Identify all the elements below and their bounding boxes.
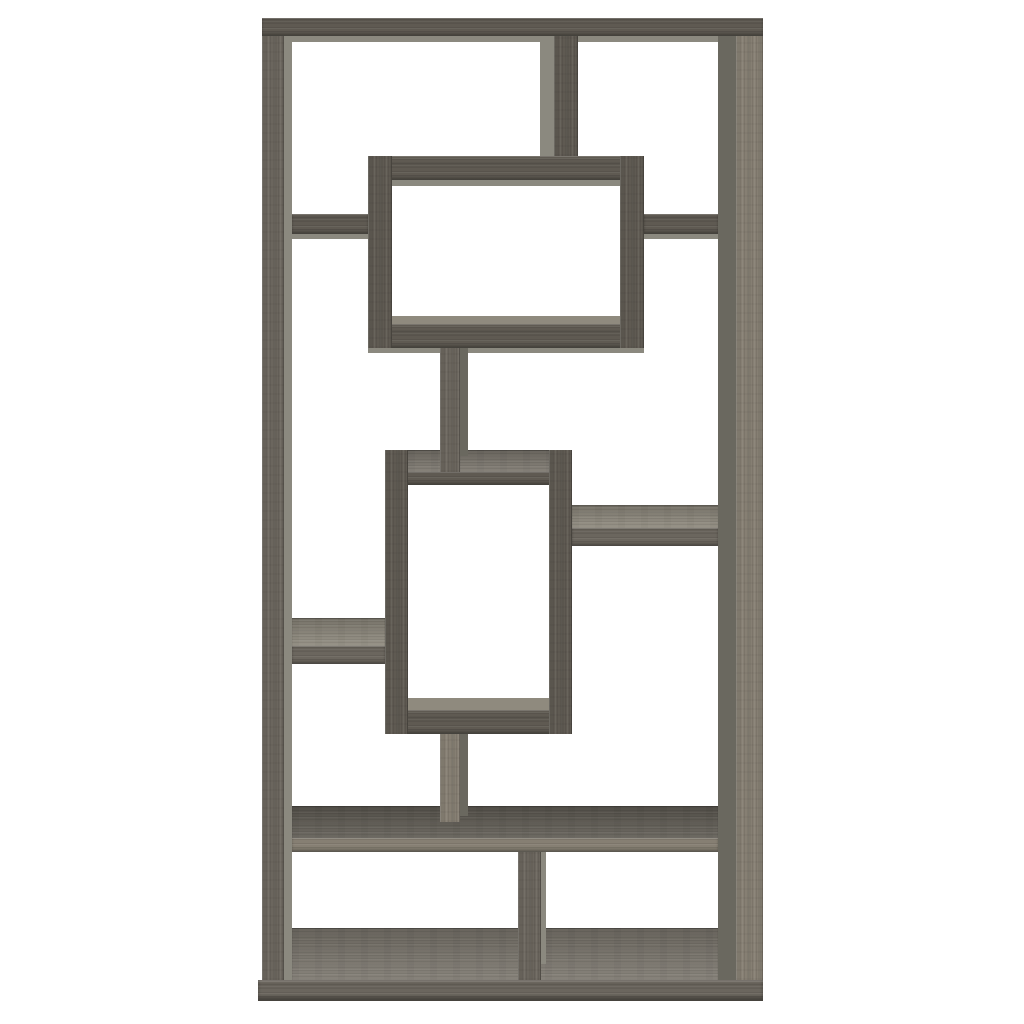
- middle-box-bottom: [385, 710, 572, 734]
- middle-box-top-front: [385, 472, 572, 485]
- bookcase-product-photo: [0, 0, 1024, 1024]
- upper-box-left: [368, 156, 392, 348]
- upper-stem-side: [460, 348, 468, 456]
- right-post-front: [736, 36, 763, 980]
- top-board: [262, 18, 763, 36]
- bottom-divider-front: [518, 852, 541, 980]
- left-post-front: [262, 36, 284, 980]
- upper-box-bottom-surface: [392, 316, 620, 324]
- upper-stem-front: [440, 348, 460, 472]
- upper-right-shelf-underside: [644, 234, 718, 239]
- top-divider-side: [540, 36, 554, 156]
- base-board: [258, 980, 763, 1001]
- lower-stem-front: [440, 734, 460, 822]
- left-post-side: [284, 36, 292, 980]
- middle-box-left: [385, 450, 408, 734]
- upper-box-bottom: [368, 324, 644, 348]
- lower-stem-side: [460, 734, 468, 816]
- upper-box-right: [620, 156, 644, 348]
- mid-right-shelf-front: [572, 528, 718, 546]
- top-divider-front: [554, 36, 578, 156]
- upper-left-shelf: [292, 214, 368, 234]
- upper-right-shelf: [644, 214, 718, 234]
- top-board-underside: [292, 36, 718, 42]
- middle-box-top-surface: [385, 450, 572, 472]
- upper-left-shelf-underside: [292, 234, 368, 239]
- lower-shelf-front: [292, 838, 718, 852]
- upper-box-top-underside: [392, 180, 620, 186]
- mid-right-shelf-surface: [572, 505, 718, 528]
- mid-left-shelf-surface: [292, 618, 385, 646]
- middle-box-right: [549, 450, 572, 734]
- middle-box-bottom-surface: [408, 698, 549, 710]
- mid-left-shelf-front: [292, 646, 385, 664]
- upper-box-bottom-underside: [368, 348, 644, 353]
- upper-box-top: [368, 156, 644, 180]
- lower-shelf-surface: [292, 806, 718, 838]
- right-post-side: [718, 36, 736, 980]
- bottom-deck: [292, 928, 718, 980]
- bottom-divider-edge: [541, 852, 546, 964]
